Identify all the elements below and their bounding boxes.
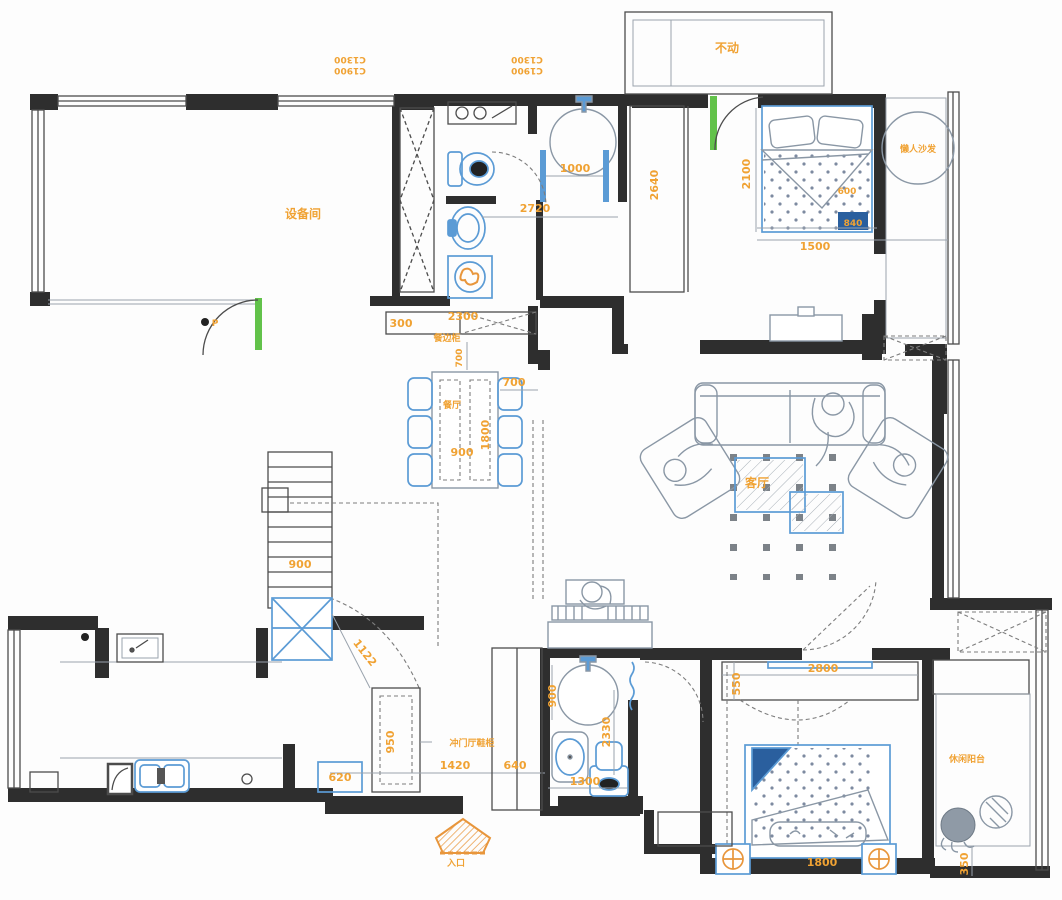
washing-machine — [448, 256, 492, 298]
floor-plan-drawing: C1900 C1300 C1900 C1300 设备间 不动 懒人沙发 1000… — [0, 0, 1062, 900]
dim-1800-table: 1800 — [479, 419, 492, 450]
label-keep-unchanged: 不动 — [715, 41, 739, 55]
dim-700-gap: 700 — [503, 376, 526, 389]
dim-1800-bed: 1800 — [807, 856, 838, 869]
window-top-left-1 — [58, 96, 186, 106]
nightstand-right — [862, 844, 896, 874]
drain-dot-2 — [81, 633, 89, 641]
dim-620: 620 — [329, 771, 352, 784]
label-sideboard: 餐边柜 — [432, 332, 460, 344]
dim-900-table: 900 — [451, 446, 474, 459]
dim-1300: 1300 — [570, 775, 601, 788]
double-sink — [135, 760, 189, 792]
dim-640: 640 — [504, 759, 527, 772]
piano — [548, 580, 652, 648]
window-tag-line1: C1900 — [511, 65, 543, 75]
master-side-table — [770, 307, 842, 341]
bedroom-2 — [658, 662, 918, 874]
dim-2330: 2330 — [600, 716, 613, 747]
window-right-balcony2 — [1036, 610, 1048, 870]
dim-900-stairs: 900 — [289, 558, 312, 571]
label-dining: 餐厅 — [442, 399, 461, 411]
dim-2640: 2640 — [648, 169, 661, 200]
label-leisure-balcony: 休闲阳台 — [948, 753, 985, 765]
folding-item — [108, 764, 132, 794]
entrance-canopy — [436, 819, 490, 853]
floor-plan-canvas: C1900 C1300 C1900 C1300 设备间 不动 懒人沙发 1000… — [0, 0, 1062, 900]
dim-700-side: 700 — [455, 349, 465, 368]
sink-top — [448, 207, 485, 249]
label-entrance: 入口 — [446, 858, 465, 869]
shoe-cabinet-under-stairs — [272, 598, 332, 660]
round-chair-2 — [980, 796, 1012, 828]
master-balcony — [884, 98, 946, 360]
window-right-living — [948, 360, 959, 598]
equipment-room — [48, 108, 434, 355]
dim-350: 350 — [958, 852, 971, 875]
window-left — [32, 110, 44, 292]
label-equipment-room: 设备间 — [285, 206, 321, 221]
entry-hall — [272, 598, 545, 853]
nightstand-left — [716, 844, 750, 874]
dim-950: 950 — [384, 730, 397, 753]
dim-2800: 2800 — [808, 662, 839, 675]
dim-900-bath: 900 — [546, 684, 559, 707]
door-arc-bedroom2 — [803, 580, 876, 650]
tub-round — [558, 656, 618, 725]
window-tag-line2: C1300 — [334, 54, 366, 64]
door-arc-bath2 — [645, 662, 703, 722]
drain-dot — [201, 318, 209, 326]
dim-1420: 1420 — [440, 759, 471, 772]
bath-door-jamb-right — [603, 150, 609, 202]
window-tag-2: C1900 C1300 — [511, 54, 543, 75]
master-bedroom — [715, 97, 954, 360]
corridor-laundry — [30, 633, 282, 794]
bed-2 — [745, 745, 890, 858]
drain-circle — [242, 774, 252, 784]
dim-2720: 2720 — [520, 202, 551, 215]
window-tag-1: C1900 C1300 — [334, 54, 366, 75]
window-top-left-2 — [278, 96, 394, 106]
entry-stair-strip — [492, 648, 542, 810]
toilet-top — [448, 152, 494, 186]
door-arc-bath-top — [492, 152, 546, 206]
window-corridor-left — [8, 630, 20, 788]
window-tag-line2: C1300 — [511, 54, 543, 64]
dim-2100: 2100 — [740, 158, 753, 189]
label-lazy-sofa: 懒人沙发 — [900, 143, 937, 155]
dim-550: 550 — [730, 672, 743, 695]
coffee-table-2 — [790, 492, 843, 533]
window-tag-line1: C1900 — [334, 65, 366, 75]
dim-300: 300 — [390, 317, 413, 330]
label-p-marker: P — [212, 319, 219, 329]
dim-2300: 2300 — [448, 310, 479, 323]
dim-600: 600 — [838, 187, 857, 197]
label-shoe-cabinet: 冲门厅鞋柜 — [449, 737, 494, 749]
laundry-sink-top — [117, 634, 163, 662]
round-chair-1 — [941, 808, 975, 852]
dim-1000: 1000 — [560, 162, 591, 175]
sofa — [695, 383, 885, 445]
living-room — [637, 383, 952, 650]
label-living: 客厅 — [744, 475, 769, 490]
dim-840: 840 — [844, 219, 863, 229]
green-marker-dining-door — [255, 298, 262, 350]
dim-1500: 1500 — [800, 240, 831, 253]
dim-1122: 1122 — [350, 637, 379, 669]
outdoor-steps — [658, 812, 732, 846]
